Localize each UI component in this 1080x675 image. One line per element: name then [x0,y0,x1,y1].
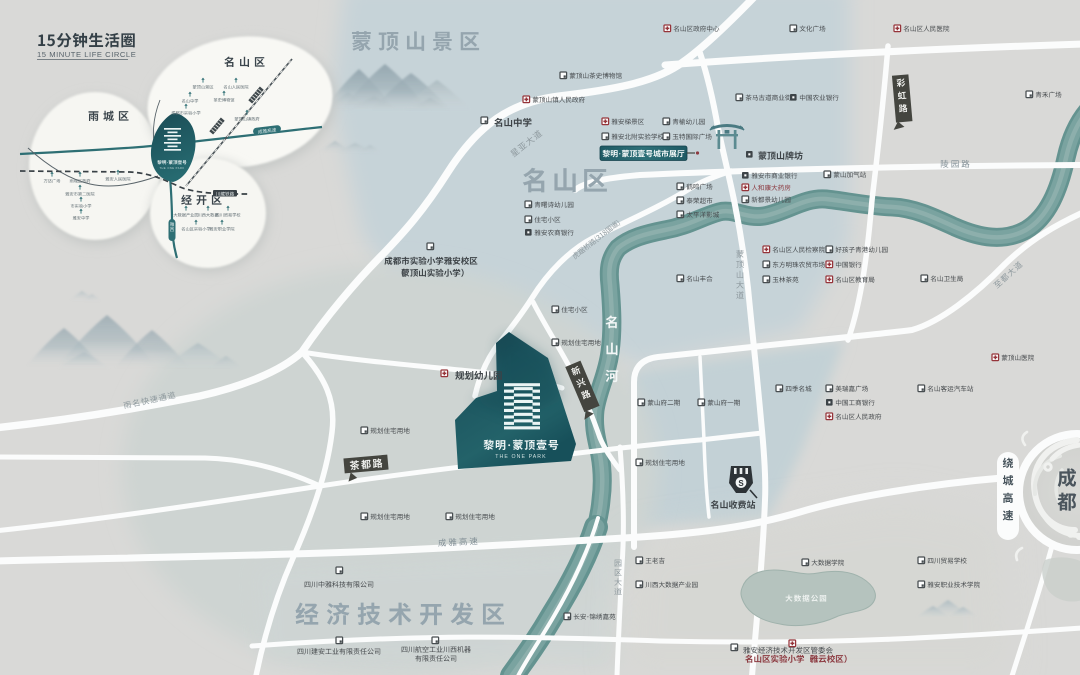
svg-text:THE ONE PARK: THE ONE PARK [159,166,184,170]
svg-text:S: S [738,479,744,488]
svg-text:15 MINUTE LIFE CIRCLE: 15 MINUTE LIFE CIRCLE [37,50,136,59]
svg-text:THE ONE PARK: THE ONE PARK [495,454,546,460]
